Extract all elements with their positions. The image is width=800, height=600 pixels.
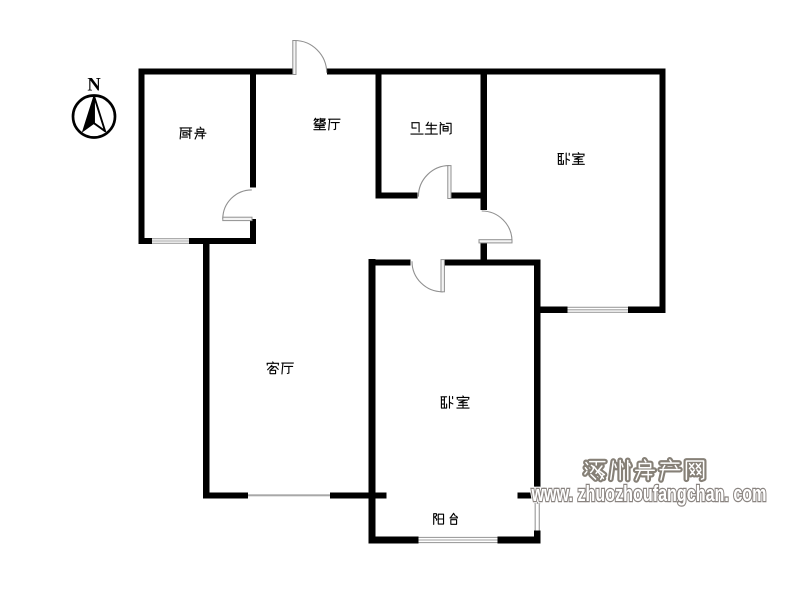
svg-text:www. zhuozhoufangchan. com: www. zhuozhoufangchan. com xyxy=(531,481,767,506)
svg-text:N: N xyxy=(87,76,101,96)
